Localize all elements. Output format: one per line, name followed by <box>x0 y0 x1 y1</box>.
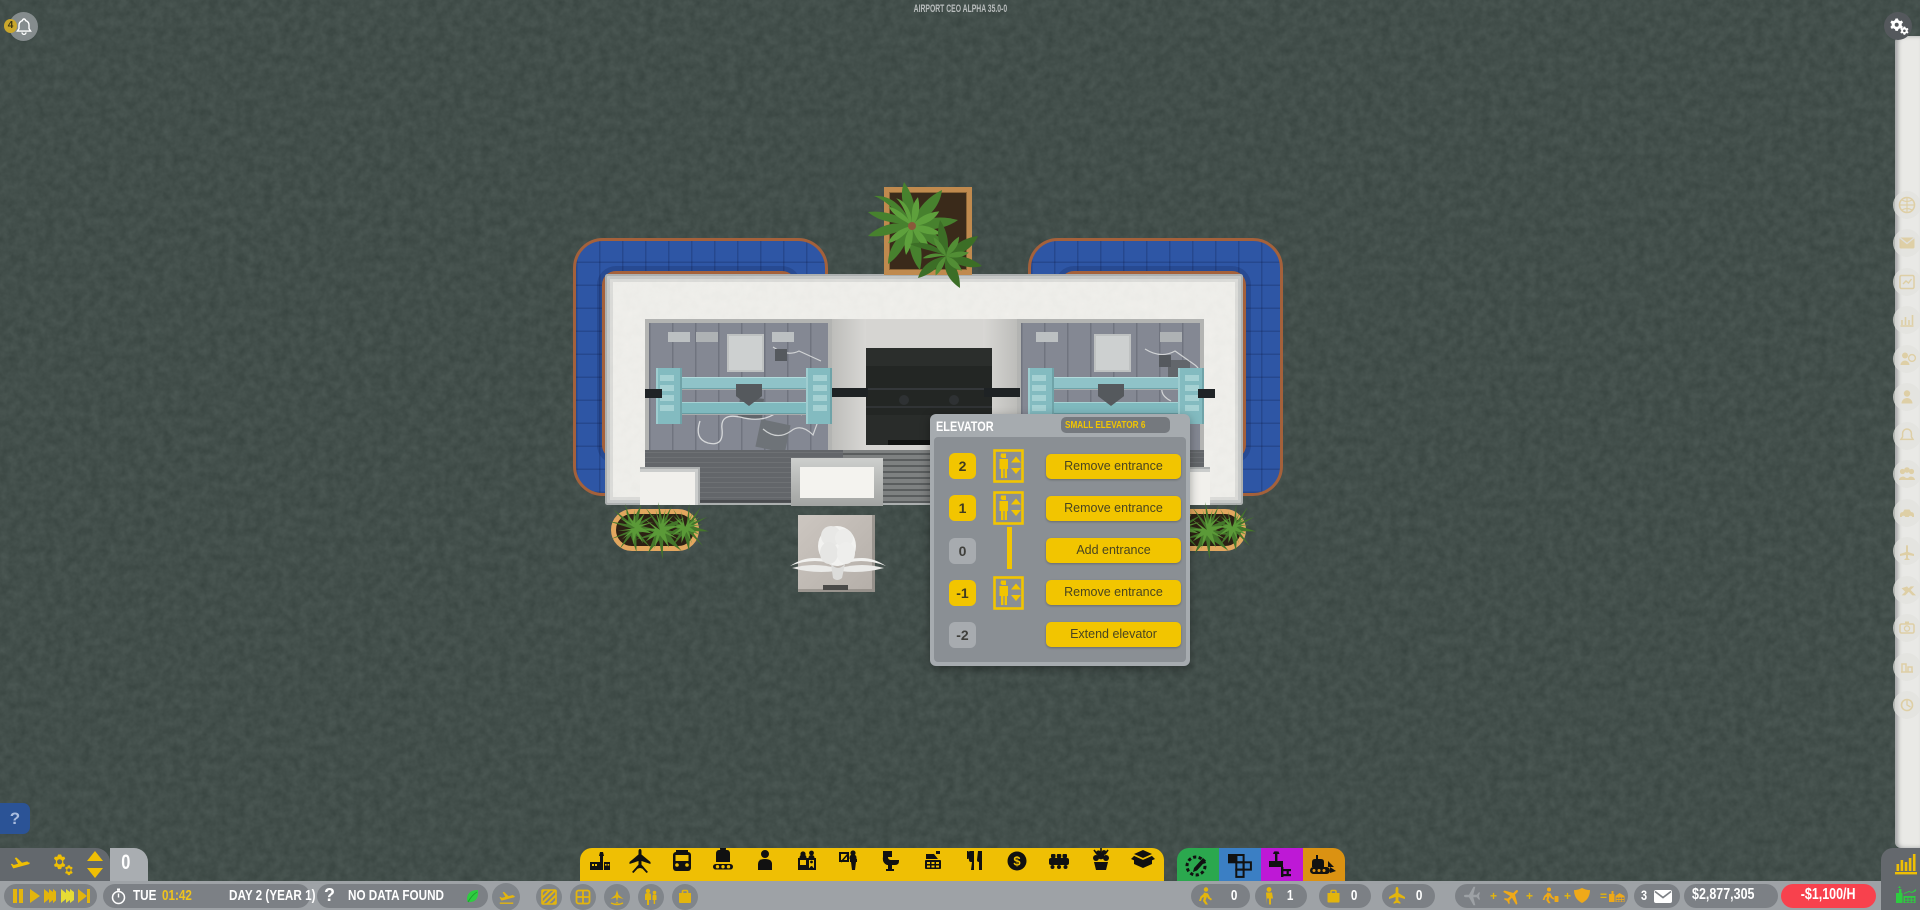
svg-text:$: $ <box>1013 854 1021 869</box>
svg-text:=: = <box>1600 889 1607 903</box>
svg-text:+: + <box>1564 889 1571 903</box>
svg-text:+: + <box>1526 889 1533 903</box>
svg-text:+: + <box>1490 889 1497 903</box>
